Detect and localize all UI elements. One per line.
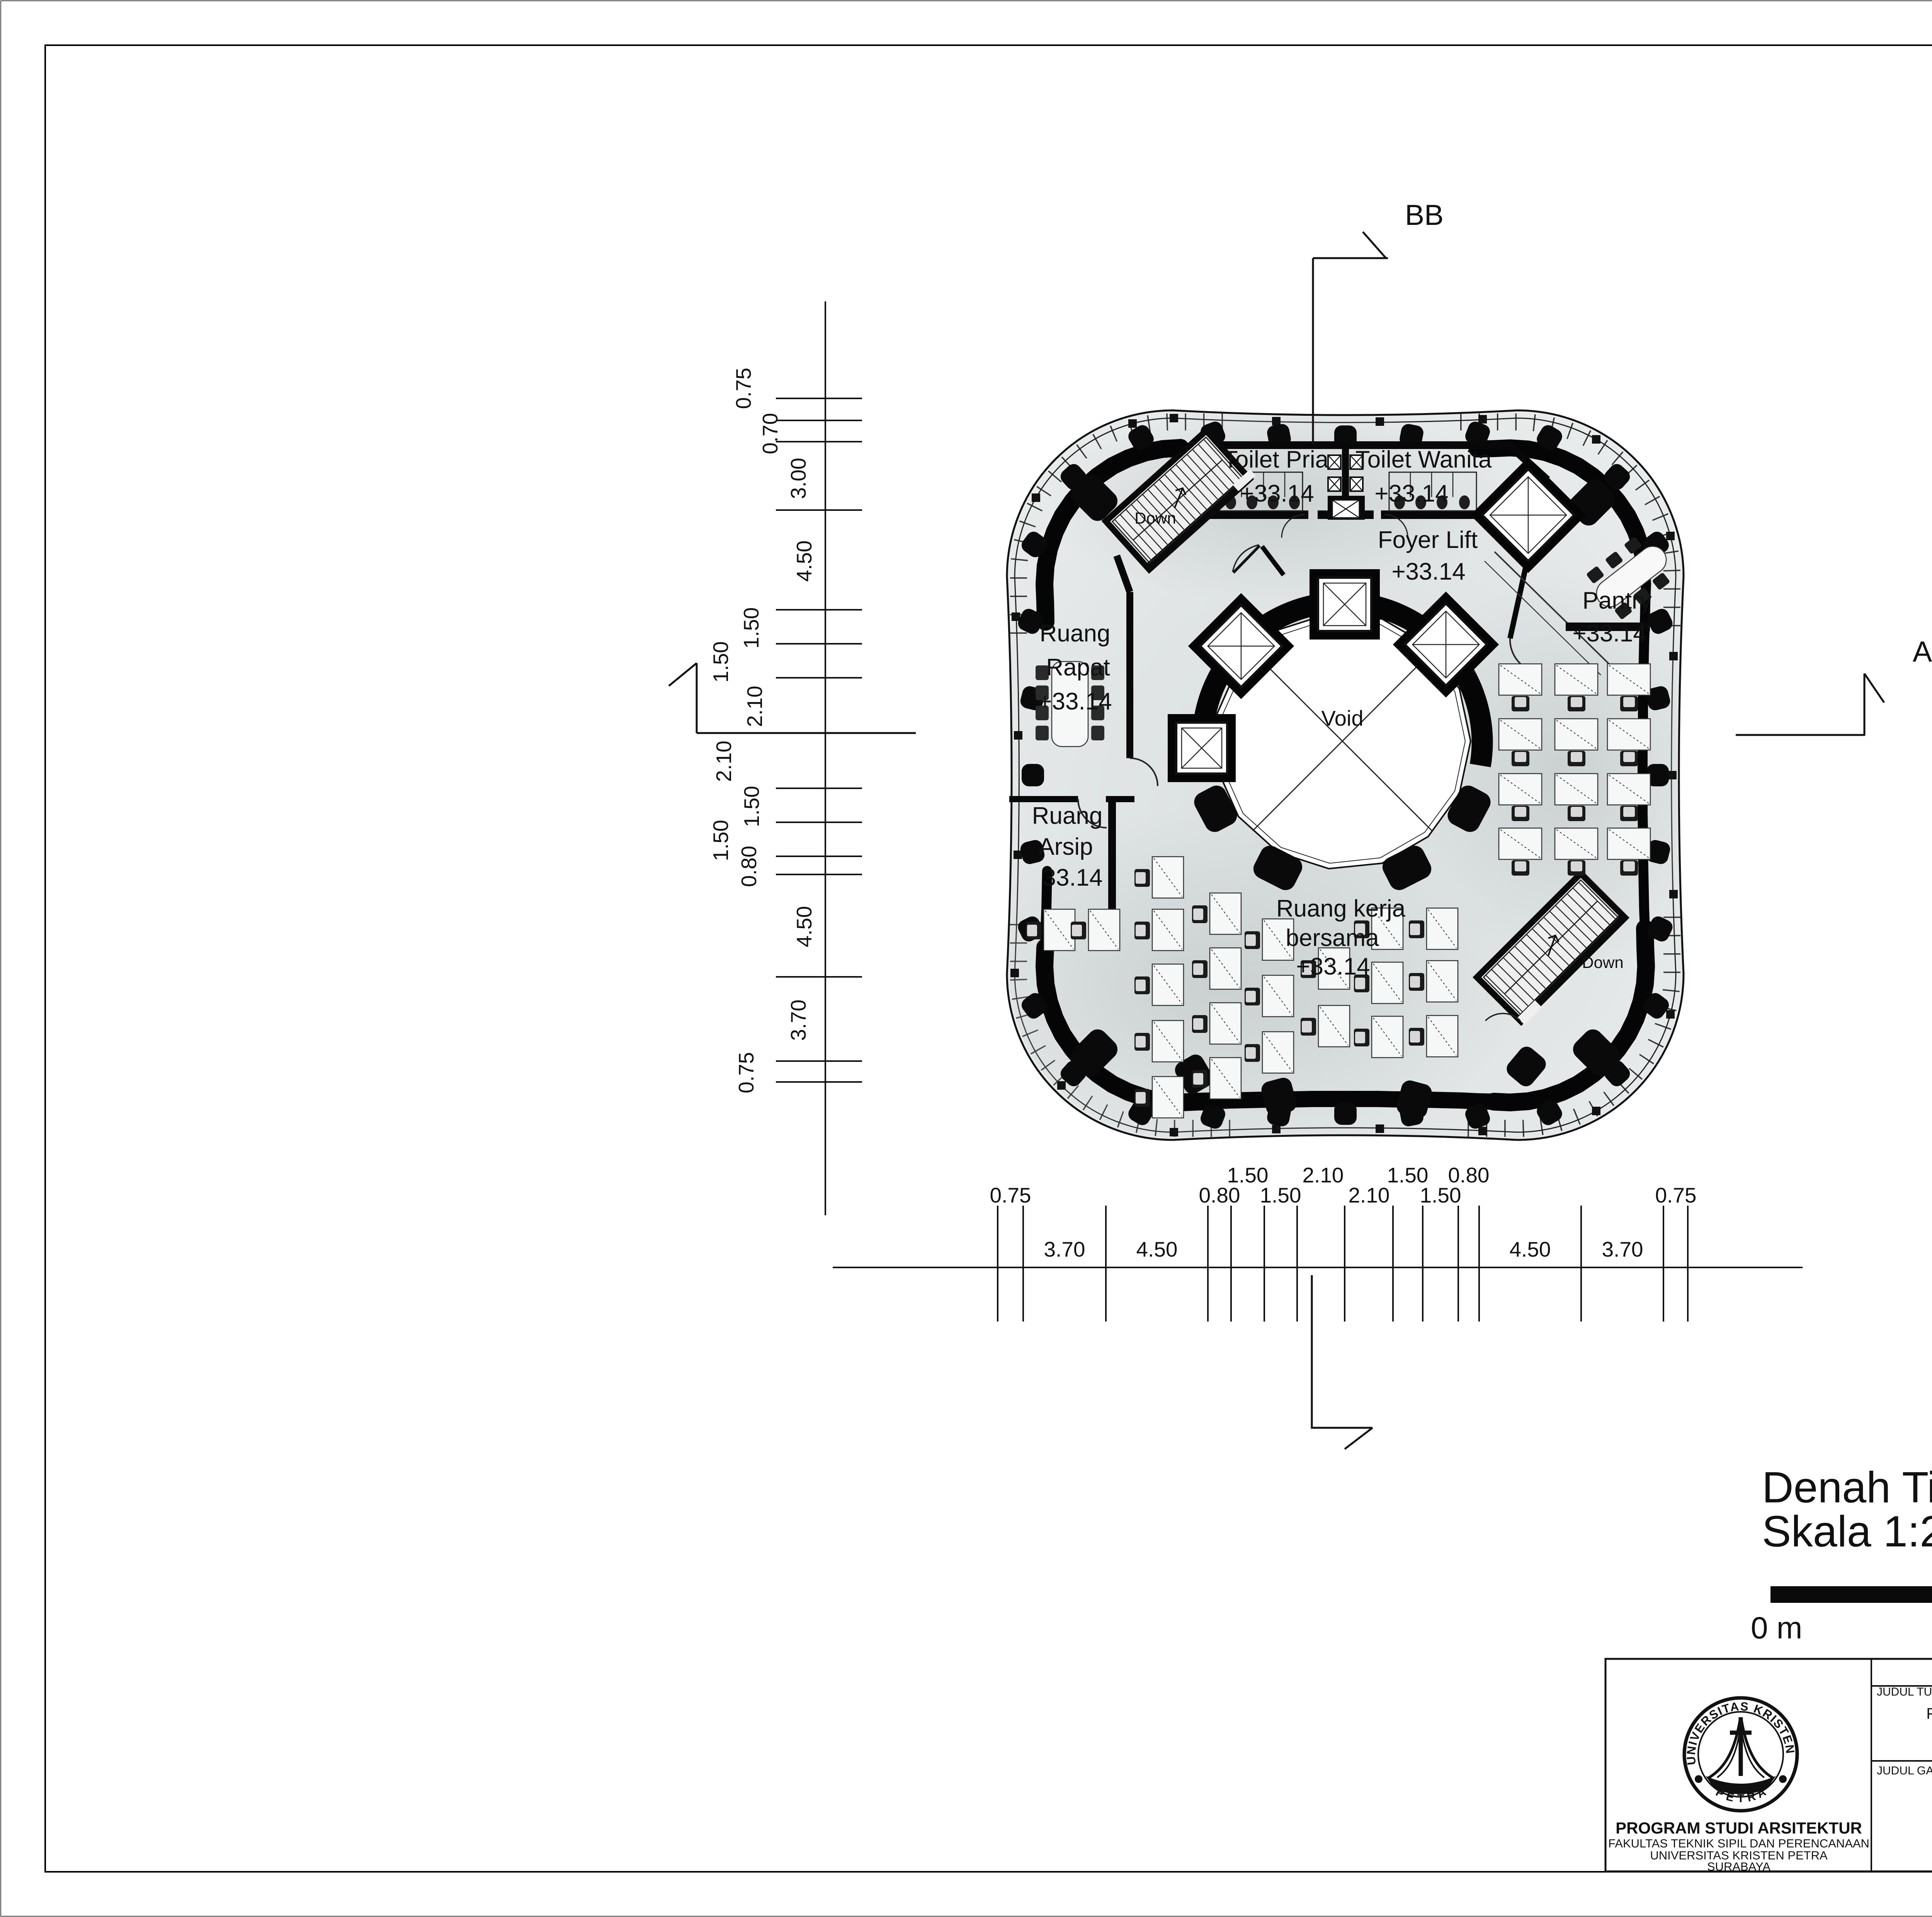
svg-text:2.10: 2.10 bbox=[1302, 1163, 1344, 1187]
svg-text:1.50: 1.50 bbox=[1420, 1183, 1461, 1207]
svg-text:0.80: 0.80 bbox=[1199, 1183, 1240, 1207]
svg-text:+33.14: +33.14 bbox=[1374, 480, 1448, 507]
svg-text:1.50: 1.50 bbox=[1260, 1183, 1301, 1207]
svg-text:1.50: 1.50 bbox=[709, 820, 733, 861]
svg-text:Void: Void bbox=[1321, 706, 1364, 730]
svg-text:3.70: 3.70 bbox=[1044, 1237, 1085, 1261]
svg-text:0.75: 0.75 bbox=[1655, 1183, 1696, 1207]
svg-text:Down: Down bbox=[1582, 953, 1623, 971]
svg-text:+33.14: +33.14 bbox=[1240, 480, 1314, 507]
svg-text:0.70: 0.70 bbox=[758, 413, 782, 454]
svg-text:0 m: 0 m bbox=[1751, 1611, 1802, 1645]
svg-text:2.10: 2.10 bbox=[712, 740, 736, 782]
svg-text:1.50: 1.50 bbox=[739, 607, 763, 648]
svg-text:2.10: 2.10 bbox=[1348, 1183, 1389, 1207]
svg-text:0.75: 0.75 bbox=[731, 367, 755, 409]
svg-text:Pantry: Pantry bbox=[1582, 587, 1651, 614]
svg-text:33.14: 33.14 bbox=[1043, 864, 1102, 891]
svg-text:Toilet Wanita: Toilet Wanita bbox=[1355, 446, 1492, 473]
svg-text:1.50: 1.50 bbox=[740, 786, 764, 827]
svg-text:Ruang kerja: Ruang kerja bbox=[1276, 895, 1406, 922]
svg-text:SURABAYA: SURABAYA bbox=[1707, 1860, 1771, 1873]
svg-text:+33.14: +33.14 bbox=[1038, 688, 1112, 715]
svg-text:Toilet Pria: Toilet Pria bbox=[1223, 446, 1329, 473]
svg-text:4.50: 4.50 bbox=[1509, 1237, 1551, 1261]
svg-text:JUDUL GAMBAR: JUDUL GAMBAR bbox=[1877, 1764, 1932, 1777]
svg-text:FASILITAS PUSAT LEMBAGA PENERB: FASILITAS PUSAT LEMBAGA PENERBANGAN DAN bbox=[1926, 1705, 1932, 1722]
svg-text:JUDUL TUGAS: JUDUL TUGAS bbox=[1877, 1686, 1932, 1698]
svg-text:T: T bbox=[1737, 1792, 1744, 1805]
svg-text:Ruang: Ruang bbox=[1040, 620, 1111, 647]
svg-text:FAKULTAS TEKNIK SIPIL DAN PERE: FAKULTAS TEKNIK SIPIL DAN PERENCANAAN bbox=[1608, 1837, 1869, 1850]
svg-text:+33.14: +33.14 bbox=[1296, 953, 1370, 980]
svg-text:Skala 1:200: Skala 1:200 bbox=[1762, 1507, 1932, 1556]
svg-text:PROGRAM STUDI ARSITEKTUR: PROGRAM STUDI ARSITEKTUR bbox=[1616, 1819, 1862, 1837]
svg-text:1.50: 1.50 bbox=[709, 641, 733, 682]
svg-text:2.10: 2.10 bbox=[743, 685, 767, 727]
svg-text:Denah Tipikal lt. 6: Denah Tipikal lt. 6 bbox=[1762, 1463, 1932, 1512]
svg-text:3.00: 3.00 bbox=[786, 458, 810, 499]
svg-text:AA: AA bbox=[1913, 635, 1932, 668]
svg-text:0.75: 0.75 bbox=[734, 1052, 758, 1093]
svg-text:Foyer Lift: Foyer Lift bbox=[1378, 527, 1478, 553]
svg-text:Down: Down bbox=[1134, 509, 1176, 527]
svg-text:+33.14: +33.14 bbox=[1572, 620, 1646, 647]
svg-text:4.50: 4.50 bbox=[792, 906, 816, 947]
svg-text:4.50: 4.50 bbox=[792, 540, 816, 582]
svg-text:Rapat: Rapat bbox=[1046, 654, 1110, 681]
svg-text:BB: BB bbox=[1405, 199, 1444, 231]
svg-text:Arsip: Arsip bbox=[1038, 833, 1093, 860]
svg-text:bersama: bersama bbox=[1286, 925, 1379, 951]
svg-text:+33.14: +33.14 bbox=[1391, 558, 1465, 585]
svg-text:0.75: 0.75 bbox=[990, 1183, 1031, 1207]
svg-text:4.50: 4.50 bbox=[1136, 1237, 1177, 1261]
svg-text:0.80: 0.80 bbox=[737, 845, 761, 887]
svg-text:Ruang: Ruang bbox=[1032, 803, 1103, 829]
svg-text:3.70: 3.70 bbox=[786, 999, 810, 1041]
svg-text:3.70: 3.70 bbox=[1602, 1237, 1643, 1261]
